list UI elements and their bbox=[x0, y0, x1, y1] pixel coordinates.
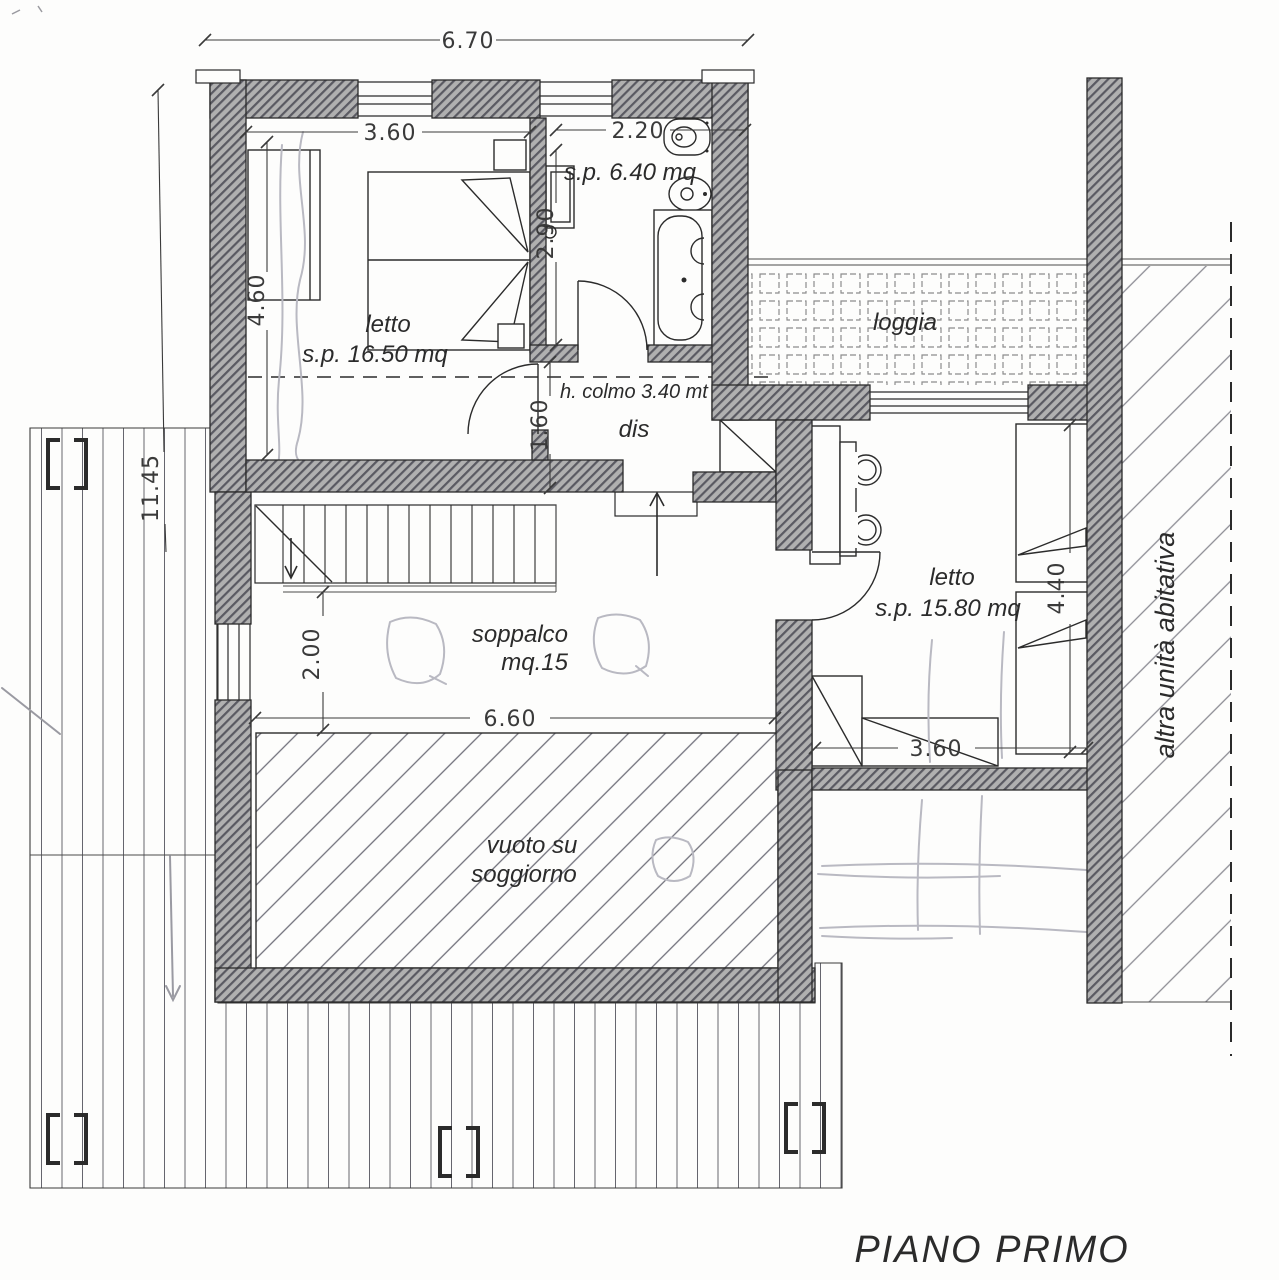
toilet bbox=[664, 119, 710, 155]
corner-cap bbox=[196, 70, 240, 83]
wall-segment bbox=[246, 460, 623, 492]
single-bed bbox=[1016, 592, 1088, 754]
window bbox=[217, 624, 250, 700]
wall-segment bbox=[210, 80, 246, 492]
dim-bedroom1-width: 3.60 bbox=[364, 121, 417, 146]
dim-bathroom-depth: 2.90 bbox=[534, 207, 559, 260]
dim-mezzanine-depth: 2.00 bbox=[300, 628, 325, 681]
wall-segment bbox=[776, 620, 812, 790]
dim-bedroom2-width: 3.60 bbox=[910, 737, 963, 762]
window bbox=[540, 82, 612, 116]
bathtub bbox=[654, 210, 712, 346]
dim-bedroom2-depth: 4.40 bbox=[1045, 562, 1070, 615]
wall-segment bbox=[812, 768, 1090, 790]
wall-segment bbox=[693, 472, 776, 502]
staircase bbox=[255, 505, 556, 592]
chair bbox=[848, 512, 881, 548]
dim-bathroom-width: 2.20 bbox=[612, 119, 665, 144]
wall-segment bbox=[215, 492, 251, 624]
desk bbox=[810, 426, 840, 564]
mezzanine-area: mq.15 bbox=[501, 649, 568, 676]
wall-segment bbox=[432, 80, 540, 118]
wall-segment bbox=[1028, 385, 1088, 420]
dim-hallway-depth: 1.60 bbox=[528, 399, 553, 452]
wall-segment bbox=[215, 968, 815, 1002]
bedroom2-label: letto bbox=[929, 564, 974, 591]
ridge-height-label: h. colmo 3.40 mt bbox=[560, 381, 709, 403]
bathroom-area: s.p. 6.40 mq bbox=[564, 159, 697, 186]
dim-left-total: 11.45 bbox=[139, 454, 164, 522]
door-bathroom bbox=[578, 281, 647, 350]
void-label-line1: vuoto su bbox=[487, 832, 578, 859]
chair bbox=[848, 452, 881, 488]
dim-bedroom1-depth: 4.60 bbox=[245, 274, 270, 327]
wall-segment bbox=[778, 770, 812, 1002]
wall-segment bbox=[712, 80, 748, 420]
dim-overall-width: 6.70 bbox=[442, 29, 495, 54]
nightstand bbox=[498, 324, 524, 348]
hallway-closet bbox=[720, 420, 776, 472]
mezzanine-label: soppalco bbox=[472, 621, 568, 648]
window bbox=[870, 392, 1028, 413]
hallway-label: dis bbox=[619, 416, 650, 443]
dim-mezzanine-width: 6.60 bbox=[484, 707, 537, 732]
bedroom1-label: letto bbox=[365, 311, 410, 338]
bedroom1-area: s.p. 16.50 mq bbox=[302, 341, 448, 368]
wall-segment bbox=[776, 420, 812, 550]
plan-title: PIANO PRIMO bbox=[854, 1229, 1129, 1271]
wall-segment bbox=[648, 345, 715, 362]
nightstand bbox=[494, 140, 526, 170]
scan-artifacts bbox=[12, 6, 42, 14]
bathroom-fixtures bbox=[544, 119, 712, 346]
void-label-line2: soggiorno bbox=[471, 861, 576, 888]
wall-segment bbox=[215, 700, 251, 1002]
wall-segment bbox=[1087, 78, 1122, 1003]
bedroom2-area: s.p. 15.80 mq bbox=[875, 595, 1021, 622]
adjacent-unit-label: altra unità abitativa bbox=[1150, 532, 1180, 759]
loggia-label: loggia bbox=[873, 309, 937, 336]
corner-cap bbox=[702, 70, 754, 83]
floor-plan-drawing: 6.70 3.60 2.20 4.60 2.90 1.60 11.45 2.00… bbox=[0, 0, 1279, 1280]
window bbox=[358, 82, 432, 116]
single-bed bbox=[1016, 424, 1088, 582]
wall-segment bbox=[712, 385, 870, 420]
